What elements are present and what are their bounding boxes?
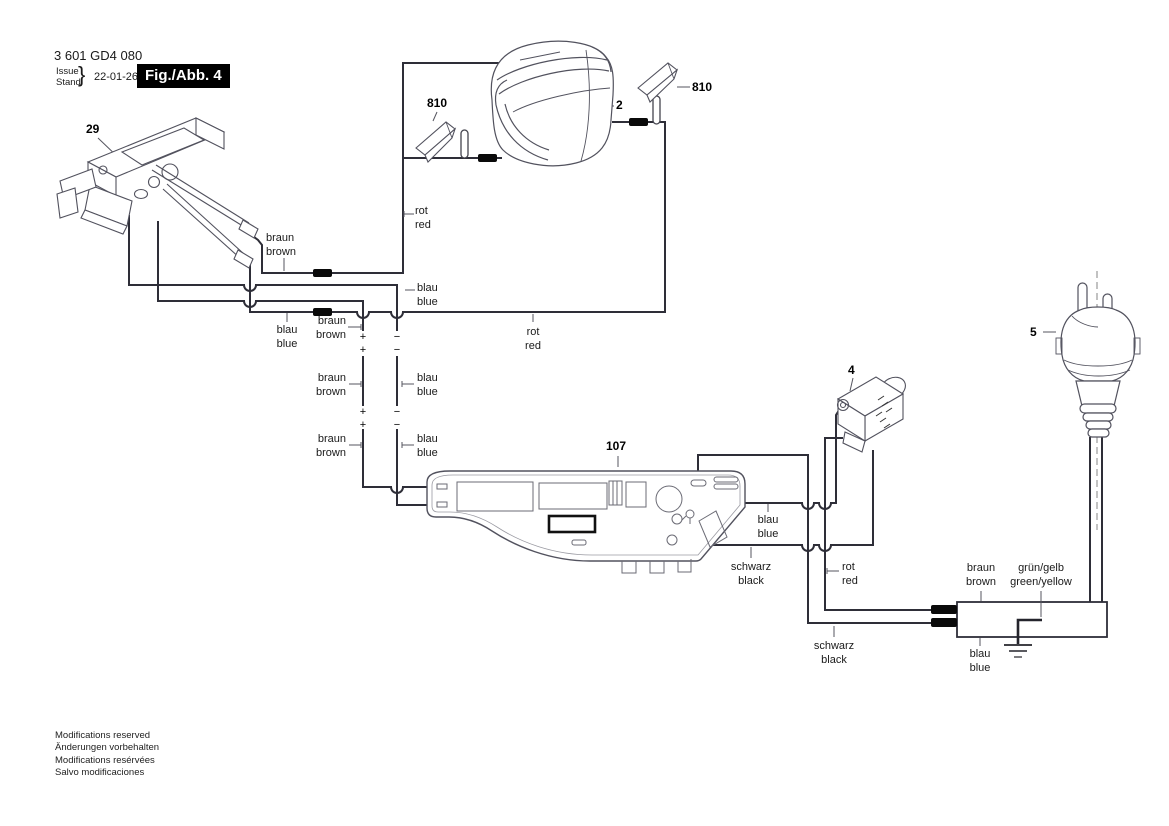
connector-icon xyxy=(931,618,957,627)
wire-label-blau-blue: blaublue xyxy=(417,432,438,460)
terminal-icon xyxy=(461,130,468,158)
wire-label-blau-blue: blaublue xyxy=(417,371,438,399)
part-label-brush-left: 810 xyxy=(427,96,447,110)
part-label-brush-right: 810 xyxy=(692,80,712,94)
connector-icon xyxy=(313,269,332,277)
polarity-minus-mark: − xyxy=(394,332,400,343)
connector-icon xyxy=(931,605,957,614)
issue-date: 22-01-26 xyxy=(94,71,138,84)
terminal-icon xyxy=(653,96,660,124)
wire-label-gruen-gelb: grün/gelbgreen/yellow xyxy=(1001,561,1081,589)
polarity-minus-mark: − xyxy=(394,407,400,418)
notice-line-es: Salvo modificaciones xyxy=(55,767,159,779)
part-label-module: 107 xyxy=(606,439,626,453)
wiring-diagram-page: 3 601 GD4 080 Issue Stand } 22-01-26 Fig… xyxy=(0,0,1169,826)
wire-label-blau-blue: blaublue xyxy=(940,647,1020,675)
part-label-field: 2 xyxy=(616,98,623,112)
polarity-plus-mark: + xyxy=(360,332,366,343)
part-label-plug: 5 xyxy=(1030,325,1037,339)
polarity-plus-mark: + xyxy=(360,420,366,431)
part-label-switch: 29 xyxy=(86,122,99,136)
polarity-plus-mark: + xyxy=(360,407,366,418)
notice-line-de: Änderungen vorbehalten xyxy=(55,742,159,754)
figure-title-badge: Fig./Abb. 4 xyxy=(137,64,230,88)
plug-drawing xyxy=(1056,271,1140,530)
wire-label-blau-blue: blaublue xyxy=(417,281,438,309)
diagram-artwork xyxy=(0,0,1169,826)
wire-label-rot-red: rotred xyxy=(503,325,563,353)
wire-label-rot-red: rotred xyxy=(415,204,431,232)
wire-label-braun-brown: braunbrown xyxy=(286,314,346,342)
suppressor-drawing xyxy=(838,373,910,452)
polarity-minus-mark: − xyxy=(394,345,400,356)
part-label-suppressor: 4 xyxy=(848,363,855,377)
notice-line-en: Modifications reserved xyxy=(55,730,159,742)
wire-blue-red-motor-right xyxy=(243,122,665,318)
wire-label-braun-brown: braunbrown xyxy=(286,432,346,460)
leader-lines xyxy=(98,87,1056,646)
wire-label-blau-blue: blaublue xyxy=(738,513,798,541)
document-part-number: 3 601 GD4 080 xyxy=(54,48,142,63)
wire-label-schwarz-black: schwarzblack xyxy=(794,639,874,667)
brace-glyph: } xyxy=(78,63,85,87)
polarity-minus-mark: − xyxy=(394,420,400,431)
field-drawing xyxy=(491,41,613,166)
polarity-plus-mark: + xyxy=(360,345,366,356)
connector-icon xyxy=(478,154,497,162)
wire-red-junction xyxy=(825,438,931,610)
wire-label-braun-brown: braunbrown xyxy=(266,231,296,259)
brush-left-drawing xyxy=(416,122,455,162)
notice-line-fr: Modifications resérvées xyxy=(55,755,159,767)
module-drawing xyxy=(427,471,745,573)
wire-label-rot-red: rotred xyxy=(842,560,858,588)
modifications-notice: Modifications reserved Änderungen vorbeh… xyxy=(55,730,159,779)
connector-icon xyxy=(629,118,648,126)
wire-label-braun-brown: braunbrown xyxy=(286,371,346,399)
wire-label-schwarz-black: schwarzblack xyxy=(711,560,791,588)
